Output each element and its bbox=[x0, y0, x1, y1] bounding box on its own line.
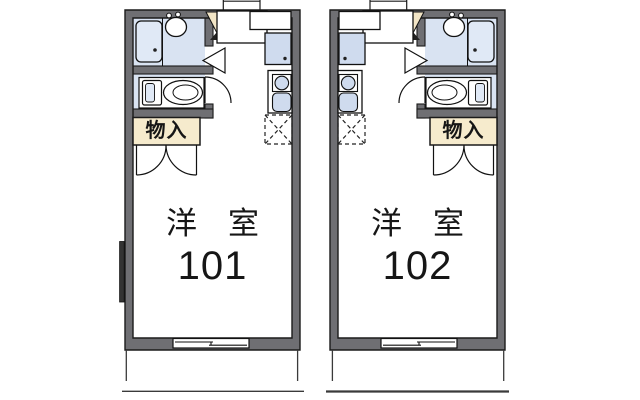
floor-plan: 物入 物入 洋 室 101 洋 室 102 bbox=[0, 0, 640, 400]
storage-label-102: 物入 bbox=[430, 117, 497, 145]
unit-101-graphics bbox=[125, 0, 300, 350]
pipe-space-strip bbox=[120, 242, 125, 303]
room-number-102: 102 bbox=[330, 246, 505, 286]
floor-plan-drawing bbox=[0, 0, 640, 400]
room-number-101: 101 bbox=[125, 246, 300, 286]
storage-label-101: 物入 bbox=[133, 117, 200, 145]
room-name-102: 洋 室 bbox=[330, 208, 505, 239]
balcony-102 bbox=[326, 350, 509, 392]
unit-102-graphics bbox=[330, 0, 505, 350]
room-name-101: 洋 室 bbox=[125, 208, 300, 239]
balcony-101 bbox=[122, 350, 304, 391]
